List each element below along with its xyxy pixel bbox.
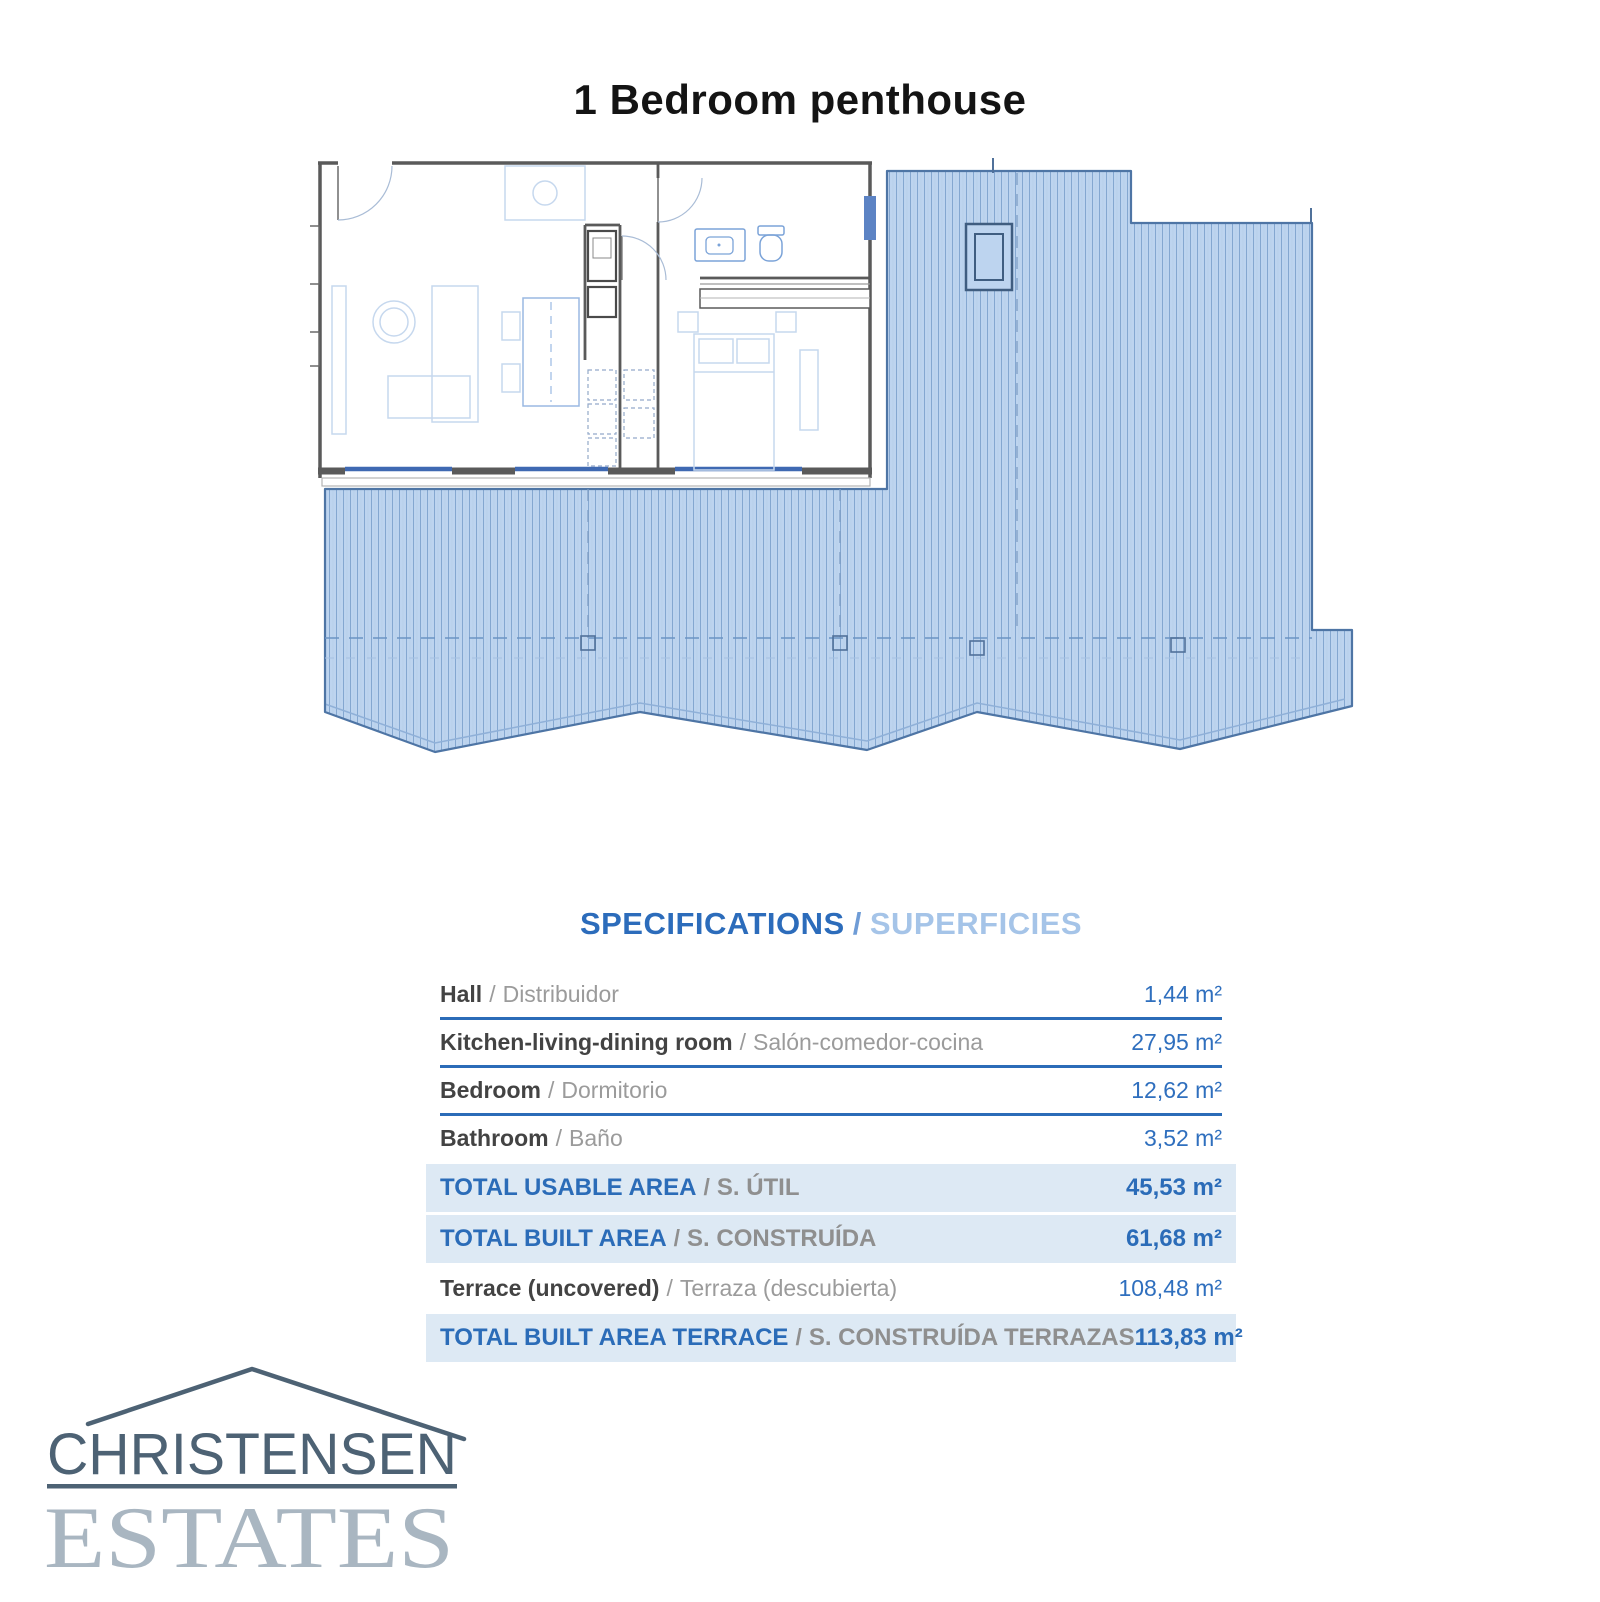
spec-value: 108,48 m² [1118,1275,1222,1302]
spec-label-es: S. CONSTRUÍDA [687,1225,876,1252]
specifications-heading: SPECIFICATIONS/SUPERFICIES [440,906,1222,942]
spec-label-es: Baño [569,1125,623,1151]
spec-value: 1,44 m² [1144,981,1222,1008]
spec-label-en: Bathroom [440,1125,549,1151]
spec-label-es: Terraza (descubierta) [680,1275,897,1301]
spec-value: 45,53 m² [1126,1174,1222,1202]
spec-row-hall: Hall/Distribuidor 1,44 m² [440,972,1222,1020]
spec-row-bedroom: Bedroom/Dormitorio 12,62 m² [440,1068,1222,1116]
spec-label-en: TOTAL BUILT AREA TERRACE [440,1324,788,1351]
spec-label-en: Hall [440,981,482,1007]
spec-value: 3,52 m² [1144,1125,1222,1152]
floor-plan [310,148,1355,760]
spec-label-en: Terrace (uncovered) [440,1275,659,1301]
spec-row-total-built: TOTAL BUILT AREA/S. CONSTRUÍDA 61,68 m² [426,1215,1236,1263]
bathroom-window [864,196,876,240]
skylight [966,224,1012,290]
spec-row-bathroom: Bathroom/Baño 3,52 m² [440,1116,1222,1161]
apartment-unit [310,158,876,486]
heading-separator: / [853,906,862,941]
spec-value: 113,83 m² [1135,1324,1243,1352]
specifications-section: SPECIFICATIONS/SUPERFICIES Hall/Distribu… [440,906,1222,1365]
spec-label-es: Dormitorio [561,1077,667,1103]
spec-label-es: S. ÚTIL [717,1174,800,1201]
logo-divider [47,1484,457,1489]
spec-row-total-terrace: TOTAL BUILT AREA TERRACE/S. CONSTRUÍDA T… [426,1314,1236,1362]
spec-value: 61,68 m² [1126,1225,1222,1253]
spec-label-es: Salón-comedor-cocina [753,1029,983,1055]
spec-label-es: Distribuidor [503,981,619,1007]
spec-row-kitchen: Kitchen-living-dining room/Salón-comedor… [440,1020,1222,1068]
company-logo-graphic: CHRISTENSEN ESTATES [40,1362,510,1597]
spec-label-en: Kitchen-living-dining room [440,1029,733,1055]
heading-english: SPECIFICATIONS [580,906,845,941]
spec-value: 12,62 m² [1131,1077,1222,1104]
company-logo: CHRISTENSEN ESTATES [40,1362,510,1602]
spec-label-en: TOTAL USABLE AREA [440,1174,696,1201]
spec-label-en: TOTAL BUILT AREA [440,1225,667,1252]
heading-spanish: SUPERFICIES [870,906,1082,941]
spec-value: 27,95 m² [1131,1029,1222,1056]
page-title: 1 Bedroom penthouse [0,76,1600,124]
spec-label-es: S. CONSTRUÍDA TERRAZAS [809,1324,1135,1351]
spec-label-en: Bedroom [440,1077,541,1103]
spec-row-total-usable: TOTAL USABLE AREA/S. ÚTIL 45,53 m² [426,1164,1236,1212]
logo-line1: CHRISTENSEN [47,1422,457,1487]
logo-line2: ESTATES [44,1490,454,1587]
spec-row-terrace: Terrace (uncovered)/Terraza (descubierta… [440,1266,1222,1311]
